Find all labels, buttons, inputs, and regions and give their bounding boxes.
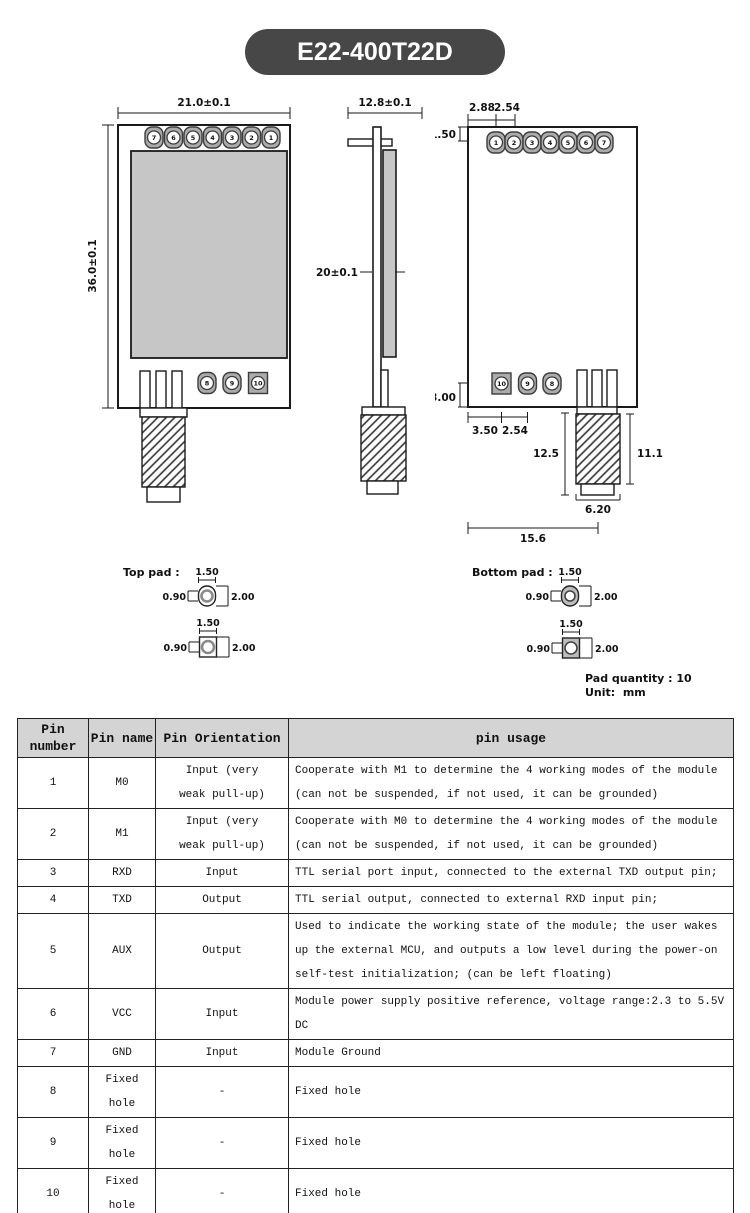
pin-usage-cell: Fixed hole bbox=[289, 1067, 734, 1118]
module-title-badge: E22-400T22D bbox=[245, 29, 505, 75]
bottom-pad-label: Bottom pad : bbox=[472, 566, 553, 579]
svg-text:6: 6 bbox=[171, 134, 176, 142]
svg-text:10: 10 bbox=[497, 380, 507, 388]
pad-hole bbox=[565, 591, 575, 601]
table-row: 4 TXD Output TTL serial output, connecte… bbox=[18, 887, 734, 914]
sma-flange bbox=[577, 407, 617, 414]
pin-orientation-cell: Input bbox=[156, 860, 289, 887]
pad-height-dim: 2.00 bbox=[594, 592, 618, 603]
pad: 1 bbox=[262, 127, 280, 148]
pad: 9 bbox=[519, 373, 537, 394]
pin-orientation-cell: Input bbox=[156, 1040, 289, 1067]
thickness-dim: 4.20±0.1 bbox=[315, 267, 358, 279]
pad: 6 bbox=[165, 127, 183, 148]
pin-name-cell: VCC bbox=[89, 989, 156, 1040]
pad-step-side bbox=[381, 370, 388, 407]
antenna-slot bbox=[607, 370, 617, 407]
pin-usage-cell: Cooperate with M0 to determine the 4 wor… bbox=[289, 809, 734, 860]
pin-number-cell: 3 bbox=[18, 860, 89, 887]
pad-hole-dim: 0.90 bbox=[526, 592, 550, 603]
pad: 5 bbox=[184, 127, 202, 148]
header-pin-orientation: Pin Orientation bbox=[156, 719, 289, 758]
pin-number-cell: 2 bbox=[18, 809, 89, 860]
table-row: 10 Fixed hole - Fixed hole bbox=[18, 1169, 734, 1213]
pad-quantity-note: Pad quantity : 10 bbox=[585, 672, 692, 685]
svg-text:1: 1 bbox=[269, 134, 274, 142]
pin-name-cell: TXD bbox=[89, 887, 156, 914]
svg-text:9: 9 bbox=[230, 380, 235, 388]
front-view-drawing: 21.0±0.1 36.0±0.1 7 6 5 4 3 2 1 8 9 10 bbox=[85, 90, 305, 520]
top-pad-detail-drawing: Top pad : 1.50 0.90 2.00 1.50 0.90 2.00 bbox=[100, 555, 260, 670]
pcb-outline bbox=[468, 127, 637, 407]
antenna-slot bbox=[592, 370, 602, 407]
pin-usage-cell: Cooperate with M1 to determine the 4 wor… bbox=[289, 758, 734, 809]
top-pad-label: Top pad : bbox=[123, 566, 180, 579]
pin-orientation-cell: - bbox=[156, 1067, 289, 1118]
pin-usage-cell: Module power supply positive reference, … bbox=[289, 989, 734, 1040]
pad: 9 bbox=[223, 373, 241, 394]
connector-body-dim: 11.1 bbox=[637, 448, 663, 460]
pcb-side bbox=[373, 127, 381, 407]
pin-number-cell: 5 bbox=[18, 914, 89, 989]
svg-text:8: 8 bbox=[205, 380, 210, 388]
table-row: 9 Fixed hole - Fixed hole bbox=[18, 1118, 734, 1169]
pin-number-cell: 8 bbox=[18, 1067, 89, 1118]
sma-tip bbox=[581, 484, 614, 495]
table-header-row: Pin number Pin name Pin Orientation pin … bbox=[18, 719, 734, 758]
pad-hole-dim: 0.90 bbox=[163, 592, 187, 603]
svg-text:3: 3 bbox=[530, 139, 535, 147]
pad-hole-dim: 0.90 bbox=[527, 644, 551, 655]
pad: 10 bbox=[249, 373, 268, 394]
svg-text:7: 7 bbox=[152, 134, 157, 142]
pad-width-dim: 1.50 bbox=[558, 567, 582, 578]
pad: 2 bbox=[243, 127, 261, 148]
sma-body bbox=[576, 414, 620, 484]
top-margin-dim: 1.50 bbox=[435, 129, 456, 141]
pad: 4 bbox=[204, 127, 222, 148]
table-row: 7 GND Input Module Ground bbox=[18, 1040, 734, 1067]
svg-text:5: 5 bbox=[191, 134, 196, 142]
pin-name-cell: GND bbox=[89, 1040, 156, 1067]
sma-body bbox=[142, 417, 185, 487]
pad: 3 bbox=[223, 127, 241, 148]
module-title: E22-400T22D bbox=[297, 38, 453, 67]
svg-text:1: 1 bbox=[494, 139, 499, 147]
pin-orientation-cell: Input bbox=[156, 989, 289, 1040]
datasheet-page: E22-400T22D 21.0±0.1 36.0±0.1 7 6 5 4 3 … bbox=[0, 0, 750, 1213]
svg-text:9: 9 bbox=[525, 380, 530, 388]
pad-width-dim: 1.50 bbox=[559, 619, 583, 630]
bottom-pitch-dim: 2.54 bbox=[502, 425, 528, 437]
front-width-dim: 21.0±0.1 bbox=[177, 97, 230, 109]
pin-usage-cell: TTL serial output, connected to external… bbox=[289, 887, 734, 914]
svg-text:2: 2 bbox=[249, 134, 254, 142]
pin-number-cell: 10 bbox=[18, 1169, 89, 1213]
table-row: 5 AUX Output Used to indicate the workin… bbox=[18, 914, 734, 989]
pin-number-cell: 7 bbox=[18, 1040, 89, 1067]
table-row: 8 Fixed hole - Fixed hole bbox=[18, 1067, 734, 1118]
sma-flange bbox=[362, 407, 405, 415]
pin-pitch-dim: 2.54 bbox=[494, 102, 520, 114]
table-row: 6 VCC Input Module power supply positive… bbox=[18, 989, 734, 1040]
sma-flange bbox=[140, 408, 187, 417]
pad: 5 bbox=[559, 132, 577, 153]
pad-width-dim: 1.50 bbox=[196, 618, 220, 629]
pad: 8 bbox=[198, 373, 216, 394]
front-height-dim: 36.0±0.1 bbox=[87, 239, 99, 292]
pin-usage-cell: TTL serial port input, connected to the … bbox=[289, 860, 734, 887]
svg-text:7: 7 bbox=[602, 139, 607, 147]
pin-name-cell: Fixed hole bbox=[89, 1169, 156, 1213]
pin-orientation-cell: Input (very weak pull-up) bbox=[156, 809, 289, 860]
svg-text:4: 4 bbox=[210, 134, 215, 142]
pad-hole bbox=[202, 641, 214, 653]
table-row: 3 RXD Input TTL serial port input, conne… bbox=[18, 860, 734, 887]
pin-usage-cell: Fixed hole bbox=[289, 1169, 734, 1213]
edge-to-pin1-dim: 2.88 bbox=[469, 102, 495, 114]
pad-height-dim: 2.00 bbox=[232, 643, 256, 654]
antenna-slot bbox=[577, 370, 587, 407]
pin-name-cell: Fixed hole bbox=[89, 1118, 156, 1169]
svg-text:8: 8 bbox=[550, 380, 555, 388]
sma-tip bbox=[367, 481, 398, 494]
overall-bottom-dim: 15.6 bbox=[520, 533, 546, 545]
pad: 2 bbox=[505, 132, 523, 153]
antenna-slot bbox=[140, 371, 150, 408]
pad: 1 bbox=[487, 132, 505, 153]
connector-total-dim: 12.5 bbox=[533, 448, 559, 460]
pad-height-dim: 2.00 bbox=[231, 592, 255, 603]
side-width-dim: 12.8±0.1 bbox=[358, 97, 411, 109]
pin-orientation-cell: - bbox=[156, 1169, 289, 1213]
sma-tip bbox=[147, 487, 180, 502]
svg-text:4: 4 bbox=[548, 139, 553, 147]
pin-name-cell: M0 bbox=[89, 758, 156, 809]
pad: 6 bbox=[577, 132, 595, 153]
sma-body bbox=[361, 415, 406, 481]
shield-side bbox=[383, 150, 396, 357]
pin-orientation-cell: Output bbox=[156, 887, 289, 914]
svg-text:5: 5 bbox=[566, 139, 571, 147]
svg-text:10: 10 bbox=[253, 380, 263, 388]
pin-name-cell: Fixed hole bbox=[89, 1067, 156, 1118]
pad: 3 bbox=[523, 132, 541, 153]
table-row: 1 M0 Input (very weak pull-up) Cooperate… bbox=[18, 758, 734, 809]
pad: 10 bbox=[492, 373, 511, 394]
header-pin-usage: pin usage bbox=[289, 719, 734, 758]
pad: 8 bbox=[543, 373, 561, 394]
side-view-drawing: 12.8±0.1 4.20±0.1 bbox=[315, 90, 430, 520]
pad-hole bbox=[565, 642, 577, 654]
pin-usage-cell: Used to indicate the working state of th… bbox=[289, 914, 734, 989]
svg-text:6: 6 bbox=[584, 139, 589, 147]
pin-name-cell: AUX bbox=[89, 914, 156, 989]
antenna-slot bbox=[172, 371, 182, 408]
pin-definition-table: Pin number Pin name Pin Orientation pin … bbox=[17, 718, 734, 1213]
header-pin-name: Pin name bbox=[89, 719, 156, 758]
pin-usage-cell: Module Ground bbox=[289, 1040, 734, 1067]
edge-to-pin10-dim: 3.50 bbox=[472, 425, 498, 437]
pad: 7 bbox=[595, 132, 613, 153]
unit-note: Unit: mm bbox=[585, 686, 646, 699]
pin-number-cell: 6 bbox=[18, 989, 89, 1040]
svg-text:2: 2 bbox=[512, 139, 517, 147]
pad: 7 bbox=[145, 127, 163, 148]
pin-number-cell: 9 bbox=[18, 1118, 89, 1169]
shield-can bbox=[131, 151, 287, 358]
pin-orientation-cell: - bbox=[156, 1118, 289, 1169]
header-pin-number: Pin number bbox=[18, 719, 89, 758]
pad: 4 bbox=[541, 132, 559, 153]
pad-hole bbox=[202, 591, 213, 602]
pin-name-cell: M1 bbox=[89, 809, 156, 860]
pad-width-dim: 1.50 bbox=[195, 567, 219, 578]
pin-number-cell: 1 bbox=[18, 758, 89, 809]
pin-name-cell: RXD bbox=[89, 860, 156, 887]
pin-number-cell: 4 bbox=[18, 887, 89, 914]
pin-tab-side bbox=[348, 139, 392, 146]
pin-orientation-cell: Output bbox=[156, 914, 289, 989]
pad-hole-dim: 0.90 bbox=[164, 643, 188, 654]
svg-text:3: 3 bbox=[230, 134, 235, 142]
pin-orientation-cell: Input (very weak pull-up) bbox=[156, 758, 289, 809]
pin-usage-cell: Fixed hole bbox=[289, 1118, 734, 1169]
connector-width-dim: 6.20 bbox=[585, 504, 611, 516]
pad-height-dim: 2.00 bbox=[595, 644, 619, 655]
bottom-margin-dim: 3.00 bbox=[435, 392, 456, 404]
bottom-pad-detail-drawing: Bottom pad : 1.50 0.90 2.00 1.50 0.90 2.… bbox=[455, 555, 705, 670]
back-view-drawing: 2.88 2.54 1.50 1 2 3 4 5 6 7 10 9 8 3.00… bbox=[435, 90, 685, 545]
antenna-slot bbox=[156, 371, 166, 408]
table-row: 2 M1 Input (very weak pull-up) Cooperate… bbox=[18, 809, 734, 860]
